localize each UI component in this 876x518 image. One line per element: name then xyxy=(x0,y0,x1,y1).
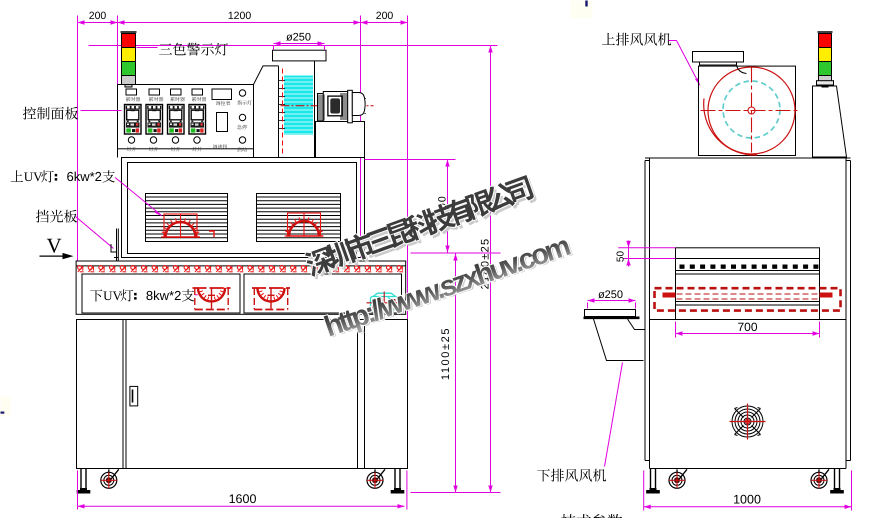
svg-text:8kw*2: 8kw*2 xyxy=(146,288,181,303)
svg-text:1100±25: 1100±25 xyxy=(440,327,452,380)
svg-text:50: 50 xyxy=(616,251,627,263)
svg-text:ø250: ø250 xyxy=(598,289,623,301)
svg-text:1000: 1000 xyxy=(733,493,761,507)
svg-text:UV: UV xyxy=(24,169,43,184)
svg-text:200: 200 xyxy=(89,10,107,22)
svg-text:V: V xyxy=(47,234,62,258)
svg-text:200: 200 xyxy=(376,10,394,22)
svg-text:UV: UV xyxy=(103,288,122,303)
svg-text:1200: 1200 xyxy=(228,10,252,22)
svg-text:700: 700 xyxy=(737,320,757,334)
svg-text:ø250: ø250 xyxy=(286,32,311,44)
svg-text:6kw*2: 6kw*2 xyxy=(67,169,102,184)
svg-text:1600: 1600 xyxy=(229,492,257,506)
